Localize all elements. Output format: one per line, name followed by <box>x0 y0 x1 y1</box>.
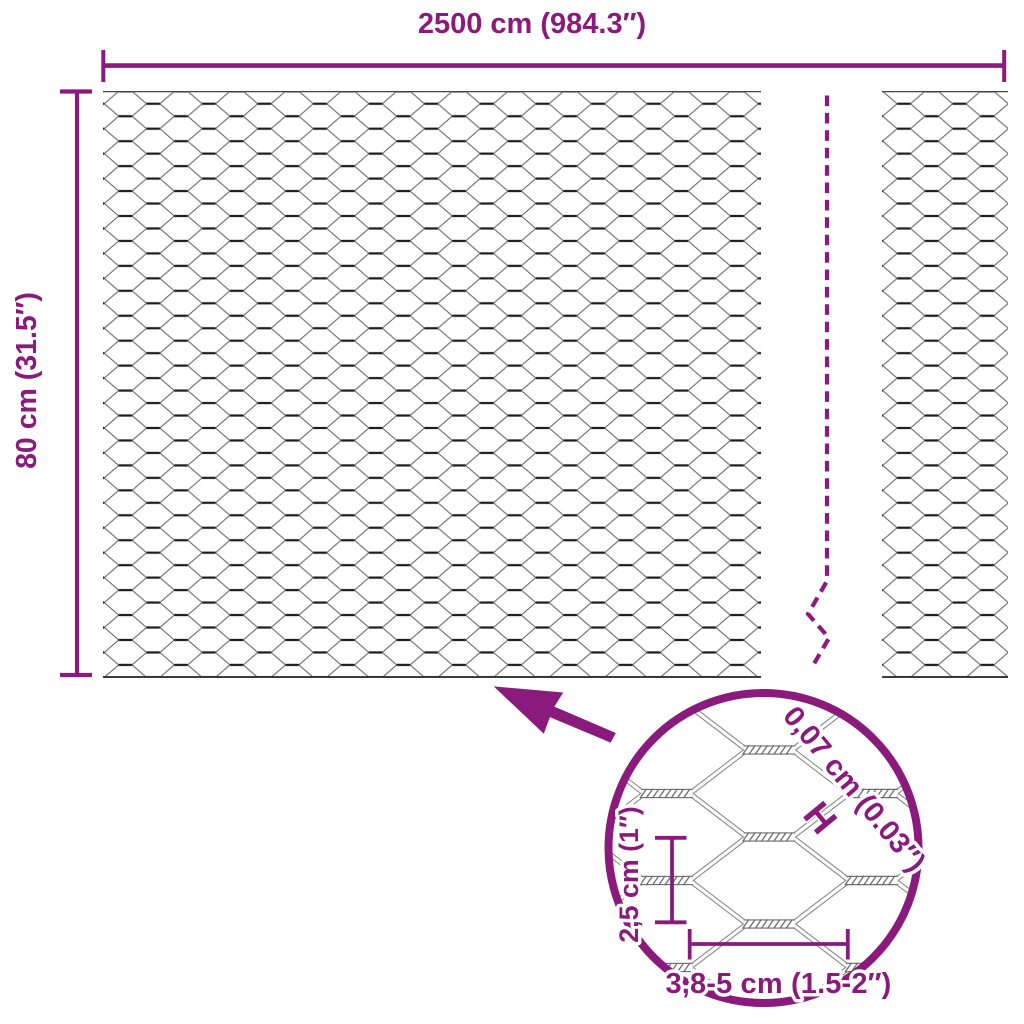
svg-text:2,5 cm (1″): 2,5 cm (1″) <box>614 806 644 942</box>
svg-text:2500 cm (984.3″): 2500 cm (984.3″) <box>418 8 646 40</box>
svg-text:3,8-5 cm (1.5-2″): 3,8-5 cm (1.5-2″) <box>666 968 892 1000</box>
svg-text:80 cm (31.5″): 80 cm (31.5″) <box>11 292 43 469</box>
